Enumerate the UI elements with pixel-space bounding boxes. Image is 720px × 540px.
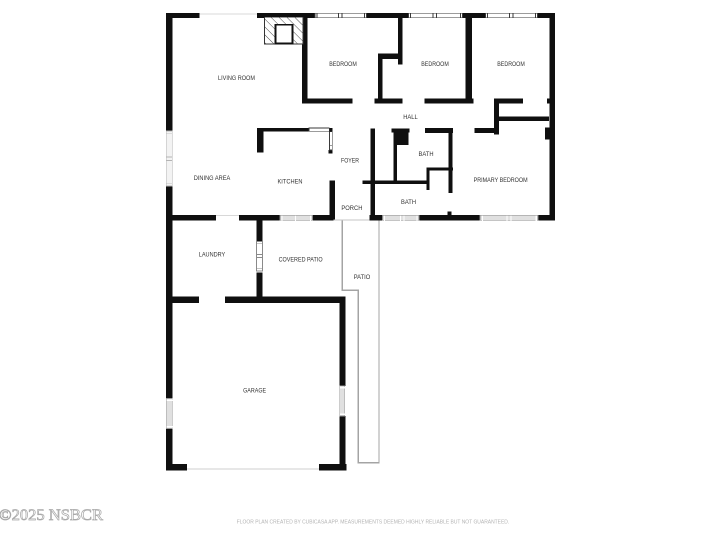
- svg-text:PATIO: PATIO: [354, 274, 371, 281]
- svg-text:COVERED PATIO: COVERED PATIO: [279, 257, 323, 264]
- svg-text:BEDROOM: BEDROOM: [497, 61, 525, 68]
- svg-text:FLOOR PLAN CREATED BY CUBICASA: FLOOR PLAN CREATED BY CUBICASA APP. MEAS…: [237, 520, 510, 526]
- svg-text:BATH: BATH: [419, 151, 434, 158]
- svg-text:PRIMARY BEDROOM: PRIMARY BEDROOM: [474, 177, 528, 184]
- svg-text:BATH: BATH: [401, 199, 416, 206]
- svg-text:FOYER: FOYER: [341, 158, 359, 165]
- svg-text:©2025 NSBCR: ©2025 NSBCR: [0, 507, 104, 524]
- svg-text:BEDROOM: BEDROOM: [329, 61, 357, 68]
- svg-text:BEDROOM: BEDROOM: [421, 61, 449, 68]
- svg-text:GARAGE: GARAGE: [243, 388, 266, 395]
- svg-text:DINING AREA: DINING AREA: [194, 175, 231, 182]
- svg-text:HALL: HALL: [403, 114, 418, 121]
- svg-text:LAUNDRY: LAUNDRY: [199, 252, 226, 259]
- svg-text:KITCHEN: KITCHEN: [278, 179, 303, 186]
- svg-text:LIVING ROOM: LIVING ROOM: [218, 75, 255, 82]
- svg-text:PORCH: PORCH: [341, 205, 362, 212]
